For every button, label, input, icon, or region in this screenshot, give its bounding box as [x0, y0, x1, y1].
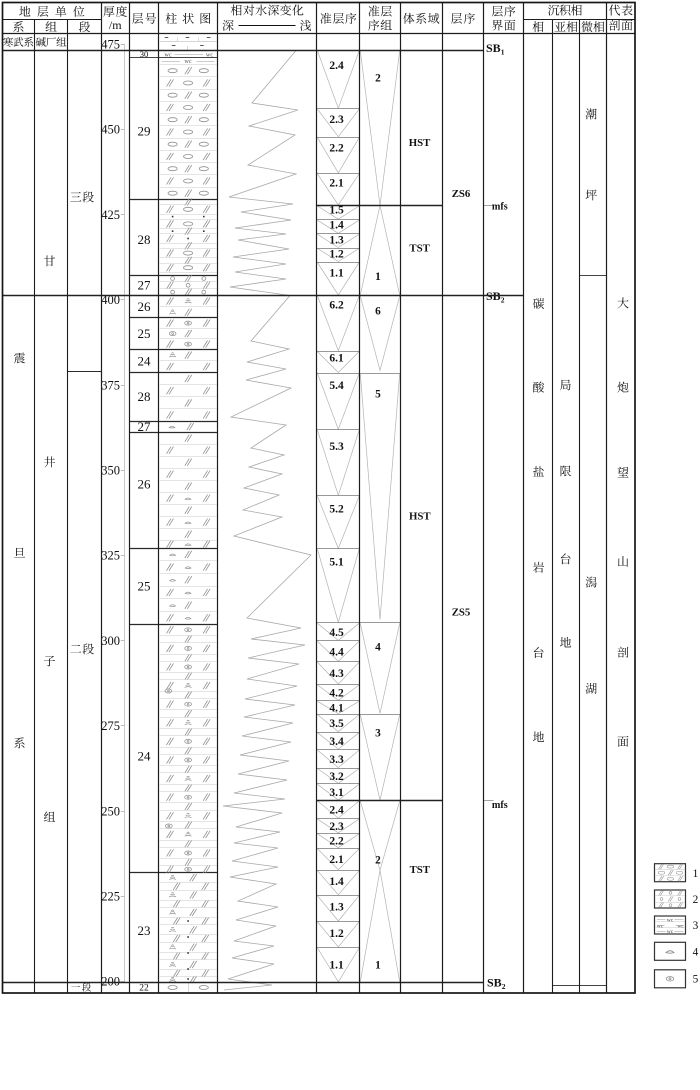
svg-text:3.1: 3.1: [329, 787, 344, 799]
svg-text:1: 1: [375, 271, 381, 283]
svg-text:450: 450: [101, 123, 120, 137]
svg-text:mfs: mfs: [492, 800, 508, 811]
svg-text:2.1: 2.1: [329, 854, 344, 866]
svg-text:2.4: 2.4: [329, 805, 344, 817]
svg-text:350: 350: [101, 464, 120, 478]
svg-text:28: 28: [138, 389, 151, 404]
svg-text:4.1: 4.1: [329, 702, 344, 714]
svg-text:5: 5: [375, 389, 381, 401]
svg-text:6.1: 6.1: [329, 352, 344, 364]
svg-text:HST: HST: [409, 137, 431, 149]
svg-text:1.1: 1.1: [329, 267, 344, 279]
svg-text:5.1: 5.1: [329, 557, 344, 569]
svg-text:4: 4: [375, 641, 381, 653]
svg-text:wc: wc: [657, 923, 664, 929]
svg-text:5: 5: [693, 974, 699, 986]
svg-text:24: 24: [138, 749, 152, 764]
svg-text:2.2: 2.2: [329, 836, 344, 848]
svg-text:wc: wc: [184, 58, 191, 65]
svg-text:2: 2: [693, 894, 699, 906]
svg-text:mfs: mfs: [492, 201, 508, 212]
svg-text:28: 28: [138, 232, 151, 247]
svg-text:3.4: 3.4: [329, 736, 344, 748]
svg-text:wc: wc: [667, 918, 674, 924]
svg-text:1.1: 1.1: [329, 959, 344, 971]
svg-text:425: 425: [101, 208, 120, 222]
svg-text:325: 325: [101, 549, 120, 563]
svg-text:wc: wc: [164, 51, 171, 58]
svg-text:27: 27: [138, 278, 152, 293]
svg-text:wc: wc: [677, 923, 684, 929]
svg-text:5.2: 5.2: [329, 504, 344, 516]
svg-text:23: 23: [138, 923, 151, 938]
svg-text:25: 25: [138, 578, 151, 593]
svg-text:ZS6: ZS6: [452, 188, 471, 200]
svg-text:1: 1: [375, 959, 381, 971]
svg-text:375: 375: [101, 378, 120, 392]
svg-text:22: 22: [139, 984, 149, 994]
svg-text:3.3: 3.3: [329, 754, 344, 766]
svg-text:3.2: 3.2: [329, 771, 344, 783]
svg-text:6: 6: [375, 305, 381, 317]
svg-text:1.3: 1.3: [329, 902, 344, 914]
svg-text:ZS5: ZS5: [452, 607, 471, 619]
svg-text:wc: wc: [667, 929, 674, 935]
svg-text:4.5: 4.5: [329, 627, 344, 639]
svg-text:6.2: 6.2: [329, 299, 344, 311]
svg-text:275: 275: [101, 719, 120, 733]
svg-text:3: 3: [375, 727, 381, 739]
svg-text:1.4: 1.4: [329, 876, 344, 888]
svg-text:1.2: 1.2: [329, 928, 344, 940]
svg-text:29: 29: [138, 123, 151, 138]
svg-text:2.2: 2.2: [329, 142, 344, 154]
svg-text:4.3: 4.3: [329, 668, 344, 680]
svg-text:2.1: 2.1: [329, 178, 344, 190]
svg-text:3.5: 3.5: [329, 718, 344, 730]
svg-text:4.4: 4.4: [329, 646, 344, 658]
svg-text:2: 2: [375, 855, 381, 867]
svg-text:2.3: 2.3: [329, 821, 344, 833]
svg-text:300: 300: [101, 634, 120, 648]
svg-text:1.4: 1.4: [329, 219, 344, 231]
svg-text:200: 200: [101, 975, 120, 989]
svg-text:TST: TST: [410, 864, 431, 876]
svg-text:wc: wc: [206, 51, 213, 58]
svg-text:250: 250: [101, 804, 120, 818]
svg-text:2: 2: [375, 72, 381, 84]
svg-text:26: 26: [138, 299, 152, 314]
svg-text:225: 225: [101, 890, 120, 904]
svg-text:1: 1: [693, 868, 699, 880]
svg-text:/m: /m: [109, 18, 122, 32]
svg-text:4: 4: [693, 947, 699, 959]
svg-text:1.2: 1.2: [329, 248, 344, 260]
svg-text:3: 3: [693, 920, 699, 932]
svg-text:4.2: 4.2: [329, 688, 344, 700]
svg-text:475: 475: [101, 38, 120, 52]
svg-text:5.4: 5.4: [329, 380, 344, 392]
svg-text:24: 24: [138, 353, 152, 368]
svg-text:TST: TST: [409, 243, 430, 255]
svg-text:25: 25: [138, 326, 151, 341]
svg-text:5.3: 5.3: [329, 441, 344, 453]
svg-text:2.3: 2.3: [329, 114, 344, 126]
svg-text:HST: HST: [409, 511, 431, 523]
svg-text:26: 26: [138, 476, 152, 491]
svg-text:2.4: 2.4: [329, 60, 344, 72]
svg-text:1.3: 1.3: [329, 234, 344, 246]
